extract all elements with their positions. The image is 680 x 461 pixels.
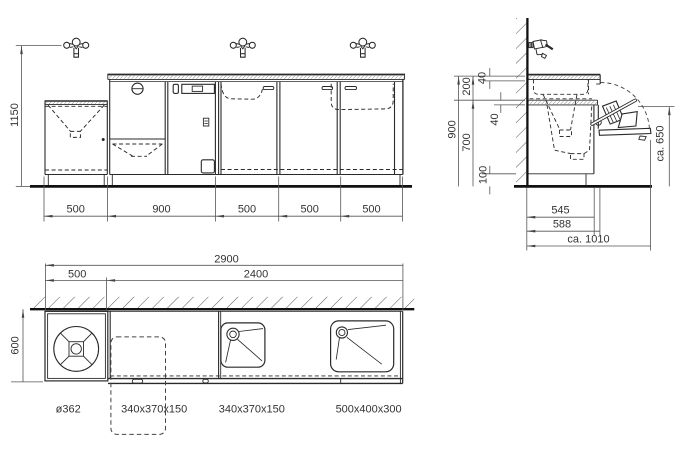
svg-text:500: 500: [362, 204, 380, 216]
svg-text:ca. 650: ca. 650: [655, 125, 667, 161]
svg-text:100: 100: [477, 166, 489, 184]
svg-text:1150: 1150: [9, 103, 21, 127]
svg-text:2900: 2900: [214, 253, 238, 265]
svg-text:500: 500: [238, 204, 256, 216]
svg-text:2400: 2400: [244, 268, 268, 280]
svg-text:500x400x300: 500x400x300: [336, 404, 402, 416]
svg-text:40: 40: [489, 113, 501, 125]
svg-text:600: 600: [10, 336, 22, 354]
svg-text:500: 500: [67, 204, 85, 216]
svg-text:900: 900: [152, 204, 170, 216]
svg-text:340x370x150: 340x370x150: [219, 404, 285, 416]
svg-text:700: 700: [461, 133, 473, 151]
svg-text:500: 500: [301, 204, 319, 216]
svg-text:545: 545: [551, 205, 569, 217]
svg-text:40: 40: [476, 72, 488, 84]
svg-text:ca. 1010: ca. 1010: [567, 234, 609, 246]
svg-text:500: 500: [68, 268, 86, 280]
svg-text:200: 200: [461, 77, 473, 95]
svg-text:ø362: ø362: [56, 404, 81, 416]
svg-text:340x370x150: 340x370x150: [121, 404, 187, 416]
svg-text:588: 588: [553, 219, 571, 231]
svg-text:900: 900: [447, 120, 459, 138]
